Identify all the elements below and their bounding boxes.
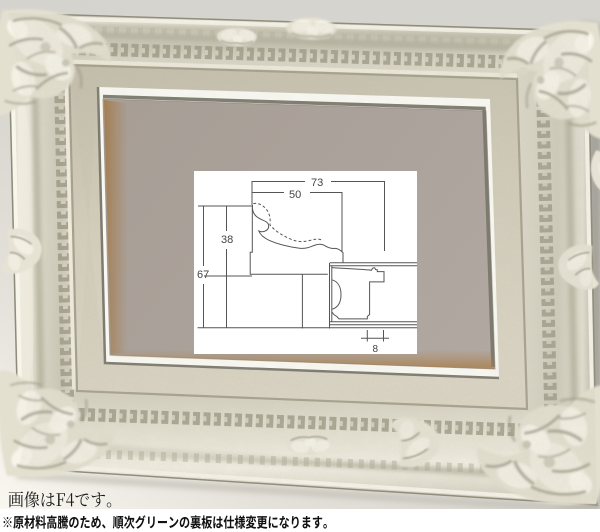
svg-text:73: 73 xyxy=(311,177,323,189)
svg-text:50: 50 xyxy=(289,189,301,201)
svg-text:8: 8 xyxy=(373,344,379,355)
svg-text:38: 38 xyxy=(221,234,233,246)
svg-text:67: 67 xyxy=(197,269,209,281)
